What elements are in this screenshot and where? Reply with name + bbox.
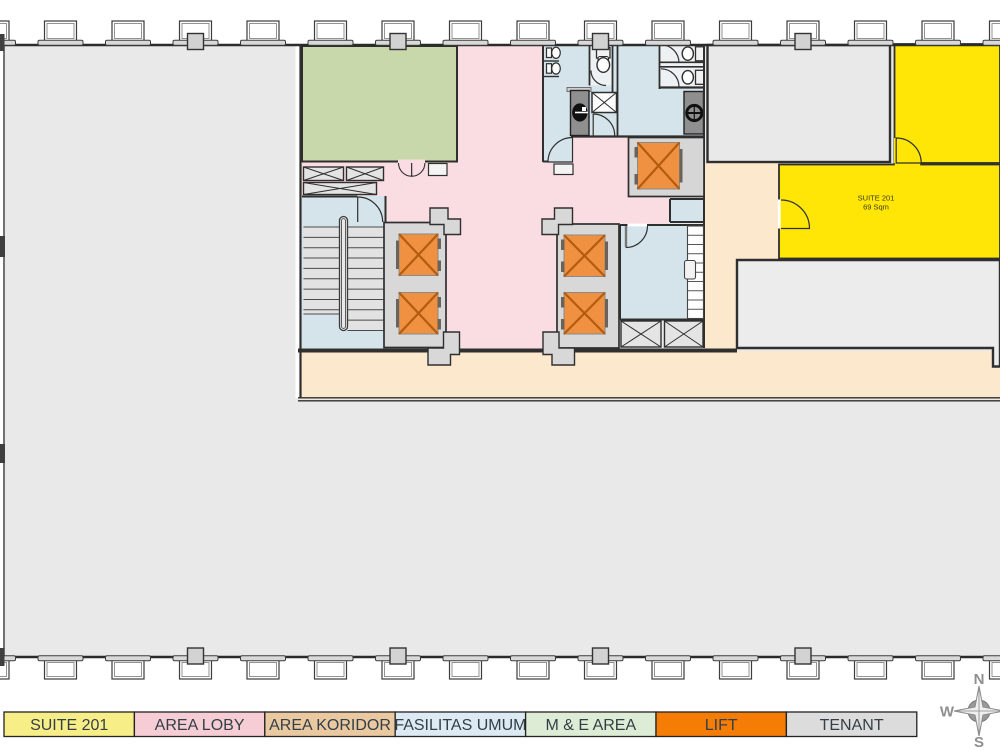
- svg-text:S: S: [974, 734, 984, 750]
- svg-text:LIFT: LIFT: [705, 717, 738, 734]
- svg-text:M & E AREA: M & E AREA: [545, 717, 636, 734]
- svg-text:FASILITAS UMUM: FASILITAS UMUM: [394, 717, 526, 734]
- svg-text:AREA KORIDOR: AREA KORIDOR: [269, 717, 391, 734]
- svg-text:N: N: [974, 671, 985, 688]
- svg-text:SUITE 201: SUITE 201: [858, 194, 895, 203]
- svg-text:AREA LOBY: AREA LOBY: [155, 717, 245, 734]
- svg-text:W: W: [940, 704, 955, 721]
- svg-text:SUITE 201: SUITE 201: [30, 717, 108, 734]
- svg-text:69 Sqm: 69 Sqm: [863, 203, 889, 212]
- svg-text:TENANT: TENANT: [820, 717, 884, 734]
